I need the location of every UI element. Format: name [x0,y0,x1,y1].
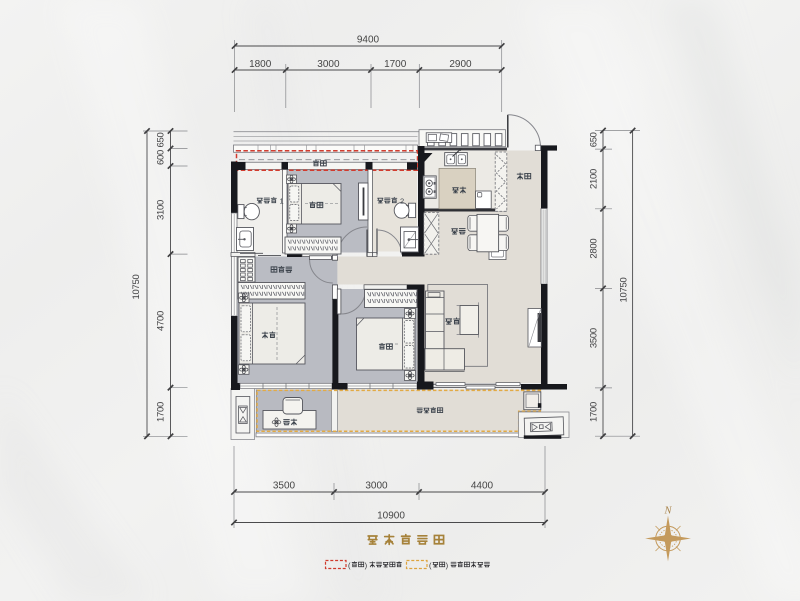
svg-text:N: N [663,506,672,517]
svg-text:2100: 2100 [589,169,600,189]
svg-text:4400: 4400 [471,481,494,492]
svg-text:10900: 10900 [377,511,405,522]
svg-text:1700: 1700 [384,59,407,70]
svg-text:3500: 3500 [273,481,296,492]
svg-text:3100: 3100 [156,200,167,220]
svg-text:1700: 1700 [589,402,600,422]
svg-text:9400: 9400 [357,35,380,46]
svg-text:10750: 10750 [618,278,629,303]
svg-text:3000: 3000 [365,481,388,492]
svg-text:650: 650 [589,132,600,147]
svg-text:650: 650 [156,133,167,148]
svg-text:10750: 10750 [131,275,142,300]
svg-text:4700: 4700 [156,311,167,331]
svg-text:600: 600 [156,150,167,165]
svg-text:1700: 1700 [156,402,167,422]
svg-text:2800: 2800 [589,239,600,259]
svg-text:3000: 3000 [317,59,340,70]
svg-text:2: 2 [400,197,404,206]
svg-text:1800: 1800 [249,59,272,70]
svg-text:2900: 2900 [449,59,472,70]
svg-text:1: 1 [280,197,284,206]
svg-text:3500: 3500 [589,328,600,348]
